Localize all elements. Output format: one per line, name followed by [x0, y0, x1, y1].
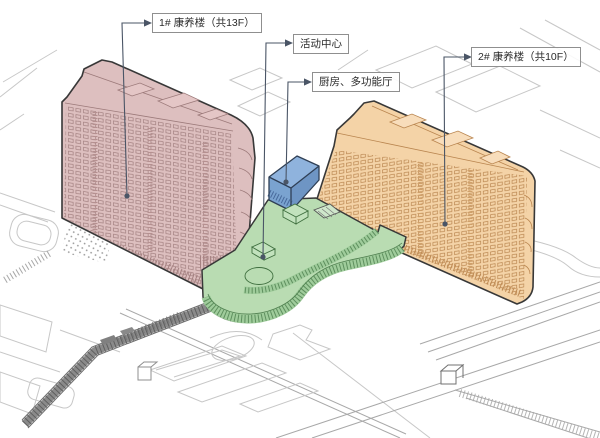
site-axonometric-diagram: 1# 康养楼（共13F） 活动中心 厨房、多功能厅 2# 康养楼（共10F）	[0, 0, 600, 438]
callout-kitchen-hall: 厨房、多功能厅	[312, 72, 400, 92]
gatehouse	[441, 365, 463, 384]
building-2-tower	[315, 101, 540, 310]
covered-walkway	[22, 294, 235, 428]
callout-building-2: 2# 康养楼（共10F）	[471, 47, 581, 67]
callout-building-1: 1# 康养楼（共13F）	[152, 13, 262, 33]
callout-activity-center: 活动中心	[293, 34, 349, 54]
